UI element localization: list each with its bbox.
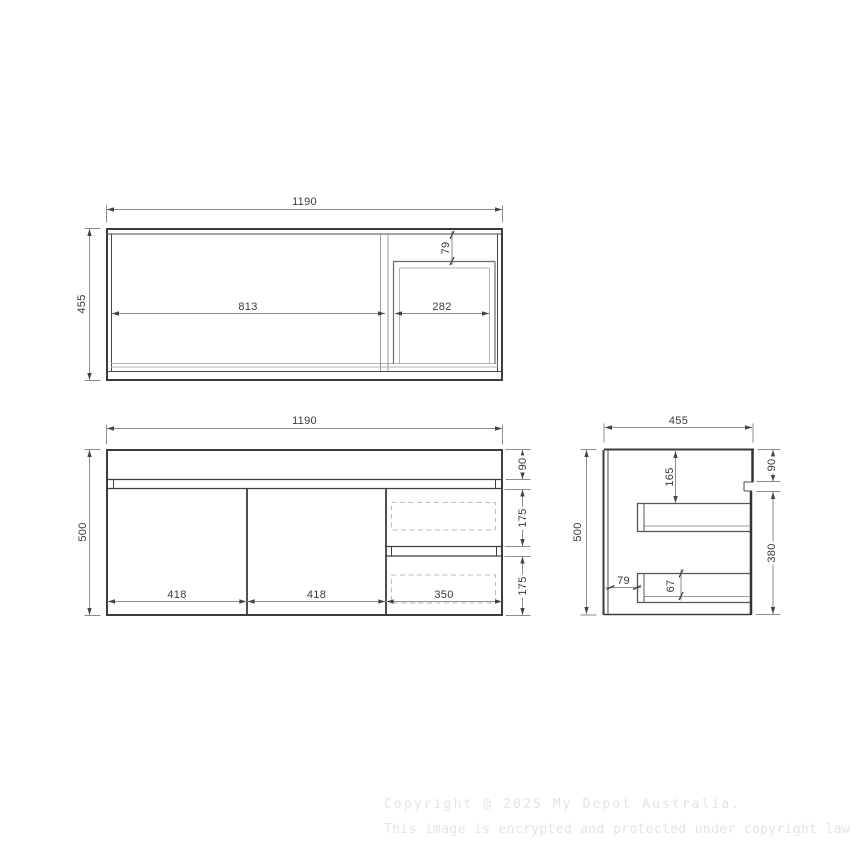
- dim-plan-right-section: 282: [432, 301, 451, 313]
- watermark-copyright-line: Copyright @ 2025 My Depot Australia.: [384, 797, 741, 812]
- plan-dimension-lines: [85, 206, 503, 381]
- dim-side-drawer-back-offset: 79: [617, 575, 630, 587]
- technical-drawing-page: 1190 455 813 282 79 1190 500 90 175 175 …: [0, 0, 850, 850]
- dim-plan-drawer-offset: 79: [440, 241, 452, 254]
- front-view: [85, 425, 531, 616]
- plan-dimension-arrows: [87, 207, 502, 380]
- dim-side-drawer-inner-height: 67: [665, 579, 677, 592]
- front-dimension-arrows: [87, 426, 524, 615]
- dim-front-overall-height: 500: [77, 522, 89, 541]
- front-dimension-lines: [85, 425, 531, 616]
- dim-side-drawer-top-offset: 165: [664, 467, 676, 486]
- side-view: [581, 424, 781, 616]
- dim-front-benchtop-height: 90: [517, 456, 529, 473]
- watermark-protection-line: This image is encrypted and protected un…: [384, 822, 850, 837]
- dim-plan-left-section: 813: [238, 301, 257, 313]
- dim-side-overall-height: 500: [572, 522, 584, 541]
- plan-view: [85, 206, 503, 381]
- front-drawer-dashed-outlines: [392, 503, 496, 604]
- dim-front-drawer-bottom: 175: [517, 574, 529, 597]
- dim-front-overall-width: 1190: [292, 415, 317, 427]
- dim-front-door2-width: 418: [307, 589, 326, 601]
- dim-side-benchtop-height: 90: [766, 456, 778, 473]
- dim-side-overall-depth: 455: [669, 415, 688, 427]
- dim-front-door1-width: 418: [167, 589, 186, 601]
- dim-front-drawer-width: 350: [434, 589, 453, 601]
- dim-plan-overall-width: 1190: [292, 196, 317, 208]
- dim-side-cabinet-height: 380: [766, 541, 778, 564]
- dim-plan-overall-depth: 455: [76, 294, 88, 313]
- cabinet-drawing-linework: [0, 0, 850, 850]
- side-drawer-boxes: [638, 504, 751, 603]
- dim-front-drawer-top: 175: [517, 506, 529, 529]
